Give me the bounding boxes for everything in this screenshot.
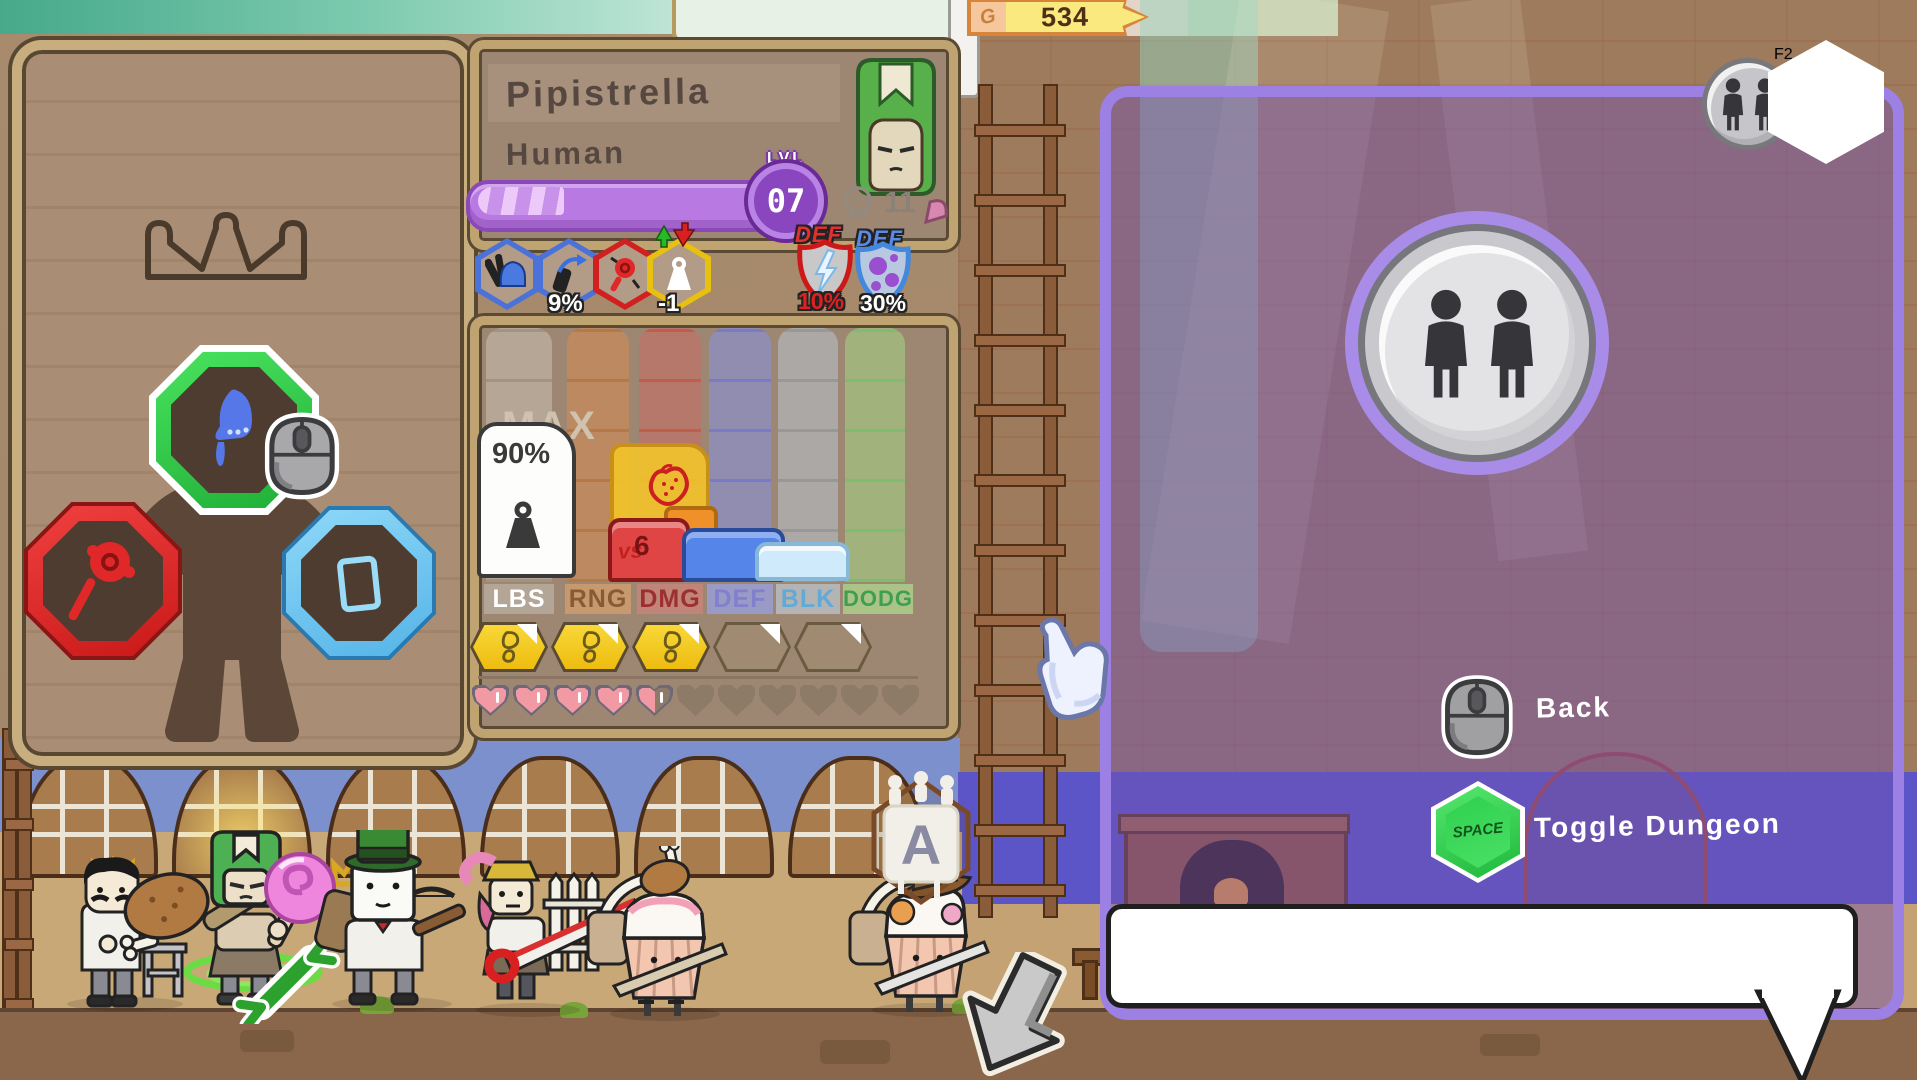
offhand-slot[interactable] [286,510,432,656]
speech-bubble [1106,904,1858,1008]
poison-defense-value: 30% [860,290,906,317]
stat-label-lbs: LBS [484,584,554,614]
person-icon [1718,78,1748,132]
movement-slot [551,622,629,672]
weight-modifier-value: -1 [658,290,679,318]
back-label: Back [1536,691,1611,724]
gold-amount: 534 [1010,1,1121,34]
speech-bubble-tail [1748,986,1848,1080]
heart-empty [718,685,755,716]
divider [478,676,918,679]
hat-item-icon [206,386,264,470]
heart-full [513,685,550,716]
heart-empty [677,685,714,716]
arena-banner-letter: A [884,806,958,882]
heart-full [472,685,509,716]
accuracy-value: 9% [548,290,583,318]
hearts-row [472,685,919,716]
game-screen: Pipistrella Human LVL 07 11 [0,0,1917,1080]
heart-empty [841,685,878,716]
sky [0,0,680,38]
npc-cupcake-drumstick[interactable] [580,846,750,1022]
perk-hex-helmet[interactable] [475,238,539,310]
heart-full [595,685,632,716]
hand-cursor [1018,616,1118,720]
heart-empty [882,685,919,716]
helmet-perk-icon [485,252,529,296]
heart-empty [759,685,796,716]
skull-icon [838,184,878,224]
ladder [972,84,1064,914]
multiplayer-button[interactable] [1345,211,1609,475]
crown-emblem [120,180,332,292]
stat-label-rng: RNG [565,584,631,614]
mace-perk-icon [603,252,647,296]
stone [820,1040,890,1064]
column-dodg [845,328,905,582]
skull-count: 11 [884,186,916,220]
dmg-value: 6 [634,530,650,562]
stat-label-blk: BLK [776,584,840,614]
back-hint[interactable] [1438,674,1516,760]
lightning-defense-value: 10% [798,288,844,315]
npc-blockhead-archer[interactable] [312,830,472,1012]
movement-slot [713,622,791,672]
weight-icon [498,498,548,554]
mouse-hint-icon [262,412,342,500]
movement-slot [470,622,548,672]
weapon-slot[interactable] [28,506,178,656]
character-name: Pipistrella [506,70,712,116]
heart-full [554,685,591,716]
character-race: Human [506,135,627,173]
stone [1480,1034,1540,1056]
stat-label-def: DEF [707,584,773,614]
weight-up-down-icon [652,222,696,248]
toggle-dungeon-label: Toggle Dungeon [1534,808,1781,844]
mouse-icon [1438,674,1516,760]
stat-label-dmg: DMG [637,584,703,614]
movement-slot [632,622,710,672]
person-icon [1415,289,1477,401]
level-bar-fill [478,187,564,215]
heart-empty [800,685,837,716]
blk-bar [755,542,850,581]
stat-label-dodg: DODG [843,584,913,614]
top-panel-edge [672,0,970,44]
person-icon [1481,289,1543,401]
toggle-dungeon-hint[interactable]: Space [1436,786,1520,878]
mace-item-icon [66,538,140,624]
card-item-icon [334,554,386,616]
down-arrow-indicator [944,952,1094,1080]
arena-banner: A [868,768,974,914]
lbs-value: 90% [492,438,550,471]
coop-join-button[interactable]: F2 [1774,46,1878,158]
movement-slot [794,622,872,672]
heart-half [636,685,673,716]
movement-slots [470,622,872,672]
stone [240,1030,294,1052]
